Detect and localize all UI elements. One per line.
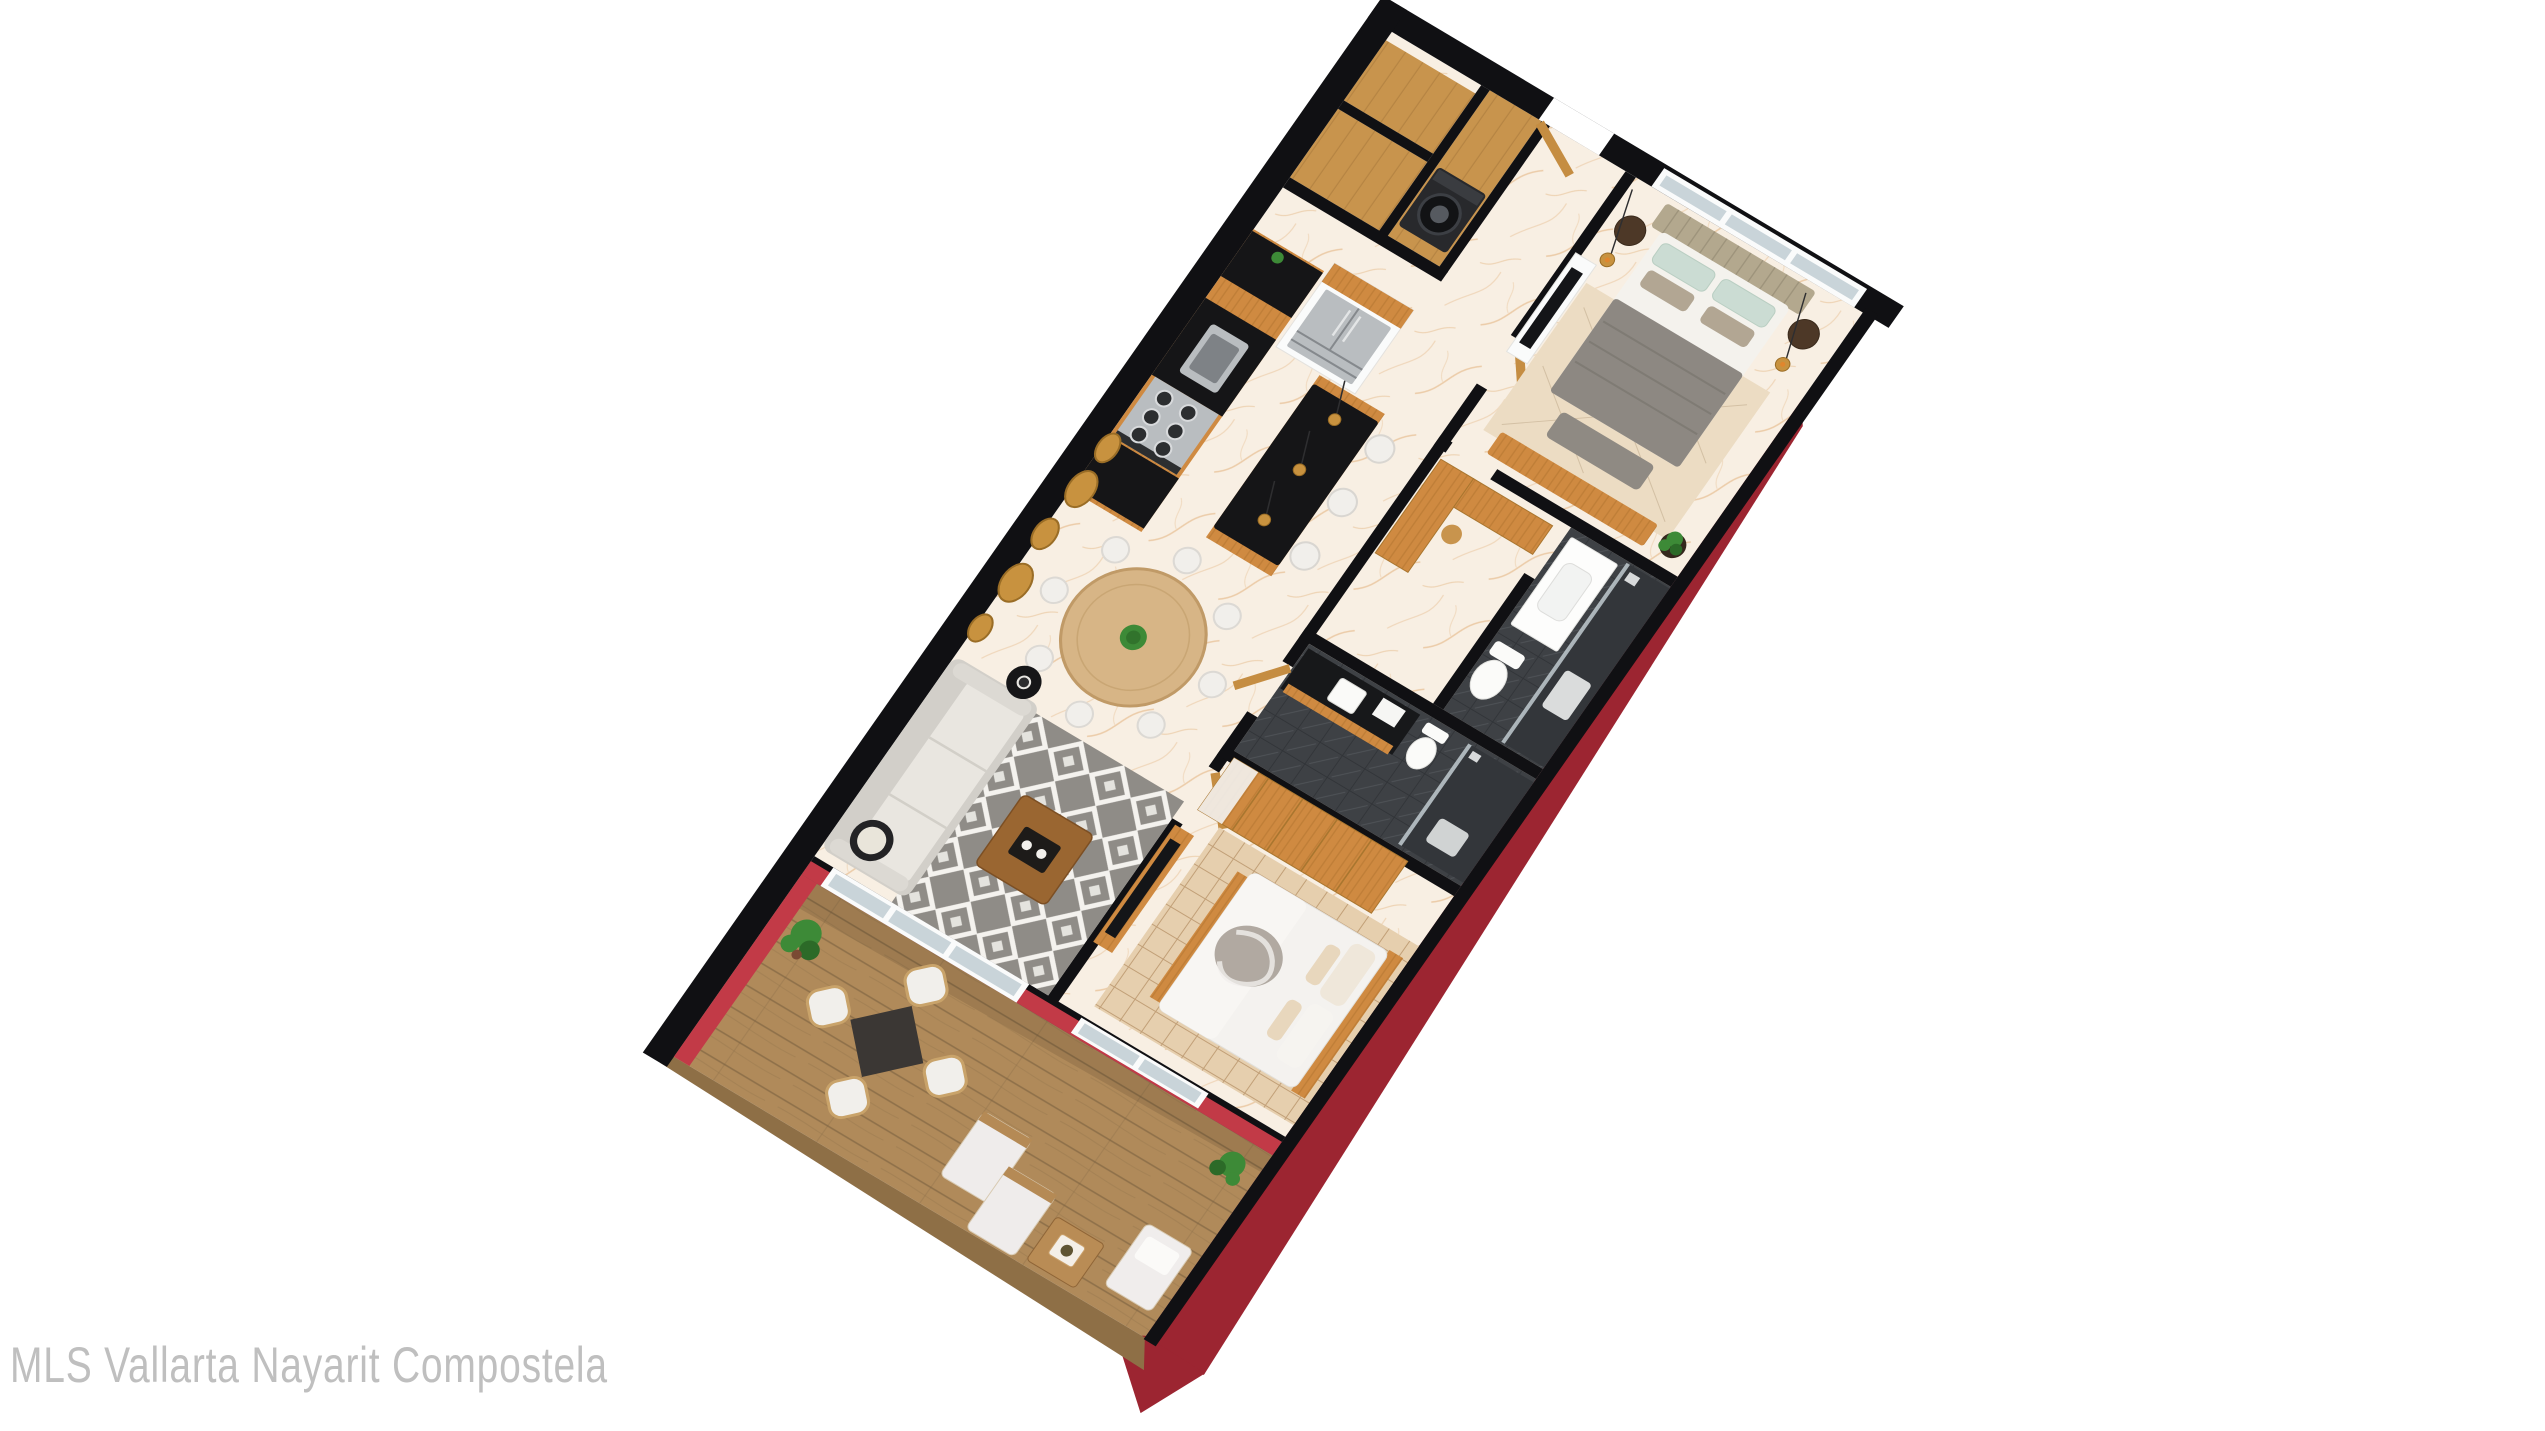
outdoor-chair <box>805 984 851 1029</box>
watermark: MLS Vallarta Nayarit Compostela <box>10 1336 608 1394</box>
outdoor-chair <box>922 1054 968 1099</box>
floor-plan-render <box>0 0 2545 1431</box>
outdoor-chair <box>824 1075 870 1120</box>
page: MLS Vallarta Nayarit Compostela <box>0 0 2545 1431</box>
outdoor-chair <box>903 963 949 1008</box>
